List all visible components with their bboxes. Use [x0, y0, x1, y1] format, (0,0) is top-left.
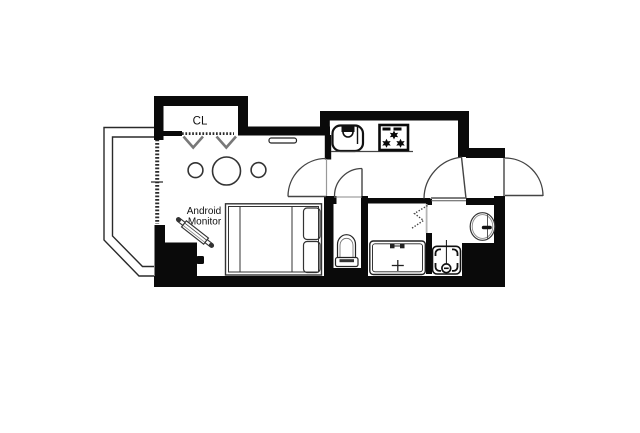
svg-text:CL: CL — [193, 115, 208, 127]
svg-text:Android: Android — [187, 206, 221, 217]
